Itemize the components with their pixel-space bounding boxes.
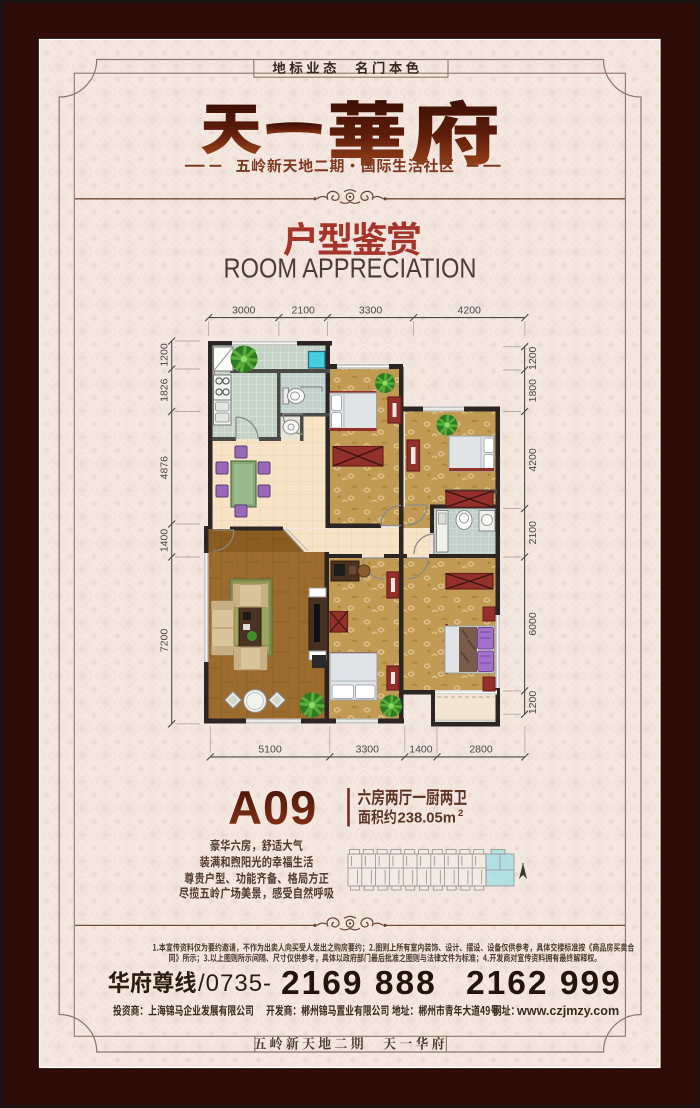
svg-text:1400: 1400	[159, 529, 171, 553]
svg-text:1200: 1200	[527, 346, 539, 370]
svg-text:2169 888: 2169 888	[281, 965, 437, 1002]
svg-text:2100: 2100	[292, 305, 316, 317]
svg-text:1200: 1200	[159, 343, 171, 367]
svg-text:3300: 3300	[356, 744, 380, 756]
svg-text:/0735-: /0735-	[198, 970, 272, 997]
svg-text:2800: 2800	[469, 744, 493, 756]
svg-text:3000: 3000	[232, 305, 256, 317]
svg-text:4200: 4200	[527, 448, 539, 472]
svg-text:2162 999: 2162 999	[466, 965, 622, 1002]
svg-text:www.czjmzy.com: www.czjmzy.com	[516, 1004, 619, 1018]
svg-text:4200: 4200	[458, 305, 482, 317]
svg-text:1200: 1200	[527, 691, 539, 715]
svg-text:5100: 5100	[258, 744, 282, 756]
svg-text:4876: 4876	[159, 456, 171, 480]
svg-text:ROOM APPRECIATION: ROOM APPRECIATION	[224, 253, 477, 284]
svg-text:7200: 7200	[159, 629, 171, 653]
svg-text:A09: A09	[228, 781, 317, 834]
svg-text:3300: 3300	[359, 305, 383, 317]
svg-text:6000: 6000	[527, 612, 539, 636]
svg-text:2100: 2100	[527, 521, 539, 545]
svg-text:1826: 1826	[159, 378, 171, 402]
svg-text:1800: 1800	[527, 379, 539, 403]
svg-text:238.05m: 238.05m	[398, 811, 456, 827]
svg-text:2: 2	[458, 808, 463, 819]
svg-text:1400: 1400	[409, 744, 433, 756]
